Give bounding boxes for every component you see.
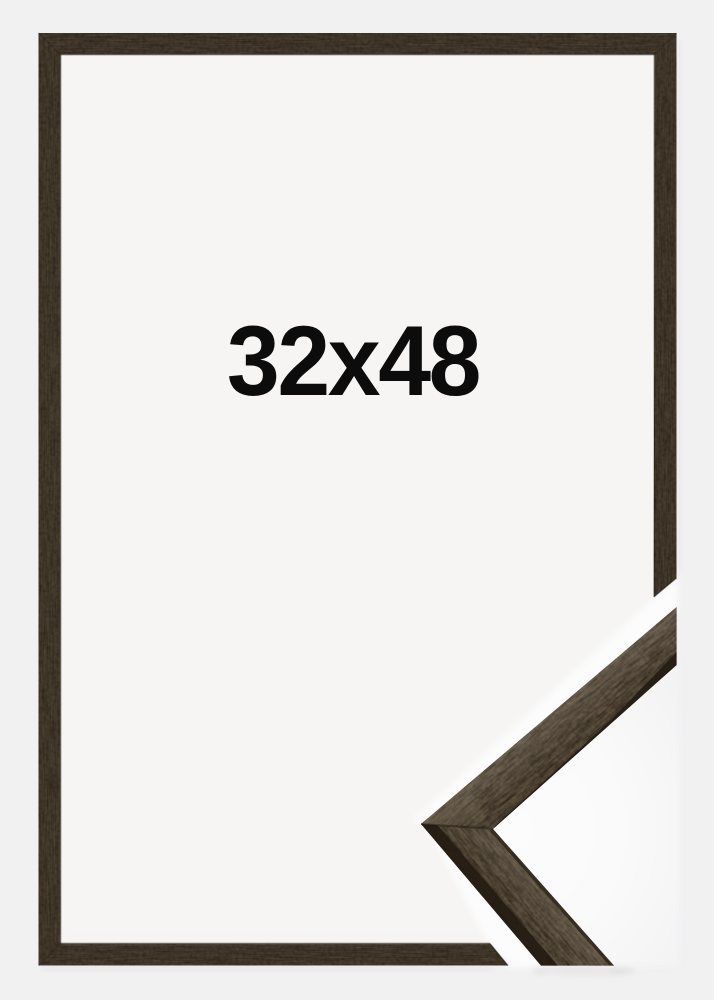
svg-text:32x48: 32x48 bbox=[227, 305, 480, 416]
